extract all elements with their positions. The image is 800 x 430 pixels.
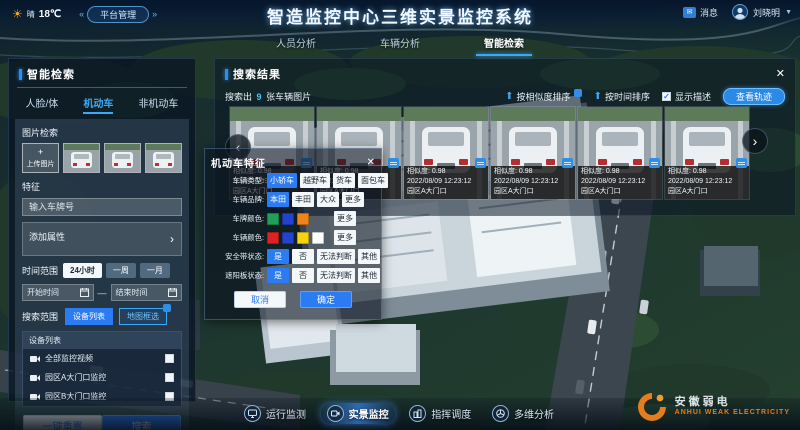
brand-more-button[interactable]: 更多 [342,192,364,207]
card-location: 园区A大门口 [581,188,659,197]
time-separator: — [98,288,107,298]
vendor-logo-icon [635,390,669,424]
sort-by-similarity-button[interactable]: ⬆ 按相似度排序 [505,90,581,103]
tab-motor-vehicle[interactable]: 机动车 [83,95,113,113]
search-panel-title: 智能检索 [27,66,75,82]
vehicle-color-more-button[interactable]: 更多 [334,230,356,245]
card-location: 园区A大门口 [494,188,572,197]
search-scope-label: 搜索范围 [22,310,58,323]
vehicle-color-label: 车辆颜色: [215,232,264,242]
sunvisor-label: 遮阳板状态: [215,270,264,280]
scope-device-list-button[interactable]: 设备列表 [65,308,113,325]
results-count: 9 [257,92,262,102]
start-time-field[interactable]: 开始时间 [22,284,94,301]
result-card[interactable]: 相似度: 0.982022/08/09 12:23:12园区A大门口 [404,107,488,199]
device-list: 设备列表 全部监控视频 园区A大门口监控 园区B大门口监控 [22,331,182,407]
card-time: 2022/08/09 12:23:12 [581,178,659,187]
query-image-thumbnail[interactable] [145,143,182,173]
result-card[interactable]: 相似度: 0.982022/08/09 12:23:12园区A大门口 [491,107,575,199]
card-time: 2022/08/09 12:23:12 [407,178,485,187]
sunvisor-option[interactable]: 其他 [358,268,380,283]
plate-color-more-button[interactable]: 更多 [334,211,356,226]
query-image-thumbnail[interactable] [104,143,141,173]
device-list-title: 设备列表 [23,332,181,349]
results-summary: 搜索出 9 张车辆图片 [225,90,311,103]
main-nav-tabs: 人员分析 车辆分析 智能检索 [0,30,800,54]
seatbelt-option[interactable]: 无法判断 [317,249,355,264]
bottom-nav-command-dispatch[interactable]: 指挥调度 [403,403,477,424]
sunvisor-option[interactable]: 是 [267,268,289,283]
vehicle-type-option[interactable]: 货车 [333,173,355,188]
left-angle-icon: « [79,9,84,19]
sort-by-time-button[interactable]: ⬆ 按时间排序 [594,90,650,103]
video-camera-icon [30,374,40,382]
motor-vehicle-feature-popup: 机动车特征 ✕ 车辆类型: 小轿车 越野车 货车 面包车 车辆品牌: 本田 丰田… [204,148,382,320]
card-description: 相似度: 0.982022/08/09 12:23:12园区A大门口 [491,166,575,199]
user-menu[interactable]: 刘晓明 ▼ [732,4,792,20]
popup-title: 机动车特征 [211,155,266,170]
vendor-watermark: 安徽弱电 ANHUI WEAK ELECTRICITY [635,390,790,424]
feature-label: 特征 [22,180,182,193]
vehicle-type-option[interactable]: 越野车 [300,173,330,188]
description-badge-icon [649,158,660,168]
vehicle-type-label: 车辆类型: [215,175,264,185]
query-image-thumbnail[interactable] [63,143,100,173]
tab-smart-search[interactable]: 智能检索 [478,32,530,53]
result-card[interactable]: 相似度: 0.982022/08/09 12:23:12园区A大门口 [578,107,662,199]
image-search-label: 图片检索 [22,126,182,139]
plate-number-input[interactable] [22,198,182,216]
video-camera-icon [30,355,40,363]
calendar-icon [80,288,89,297]
brand-option[interactable]: 丰田 [292,192,314,207]
card-location: 园区A大门口 [668,188,746,197]
cancel-button[interactable]: 取消 [234,291,286,308]
add-attribute-button[interactable]: 添加属性 › [22,222,182,256]
plate-color-swatch-blue[interactable] [282,213,294,225]
brand-option[interactable]: 大众 [317,192,339,207]
checkbox-checked-icon[interactable]: ✓ [662,92,671,101]
brand-option[interactable]: 本田 [267,192,289,207]
tab-non-motor-vehicle[interactable]: 非机动车 [138,95,178,113]
bottom-nav-operation-monitor[interactable]: 运行监测 [238,403,312,424]
card-description: 相似度: 0.982022/08/09 12:23:12园区A大门口 [578,166,662,199]
tab-vehicle-analysis[interactable]: 车辆分析 [374,32,426,53]
tab-person-analysis[interactable]: 人员分析 [270,32,322,53]
confirm-button[interactable]: 确定 [300,291,352,308]
arrow-up-icon: ⬆ [594,92,602,102]
card-description: 相似度: 0.982022/08/09 12:23:12园区A大门口 [665,166,749,199]
vendor-name-en: ANHUI WEAK ELECTRICITY [675,409,790,417]
bottom-nav-multi-analysis[interactable]: 多维分析 [486,403,560,424]
card-similarity: 相似度: 0.98 [407,168,485,177]
plate-color-swatch-orange[interactable] [297,213,309,225]
result-card[interactable]: 相似度: 0.982022/08/09 12:23:12园区A大门口 [665,107,749,199]
envelope-icon: ✉ [683,7,696,18]
vehicle-color-swatch-blue[interactable] [282,232,294,244]
calendar-icon [168,288,177,297]
device-item-gate-a[interactable]: 园区A大门口监控 [23,368,181,387]
seatbelt-label: 安全带状态: [215,251,264,261]
camera-icon [327,405,344,422]
card-time: 2022/08/09 12:23:12 [494,178,572,187]
time-range-label: 时间范围 [22,264,58,277]
chevron-right-icon: › [170,232,174,246]
plate-color-label: 车牌颜色: [215,213,264,223]
top-bar: ☀ 晴 18℃ « 平台管理 » 智造监控中心三维实景监控系统 ✉ 消息 刘晓明… [0,0,800,28]
description-badge-icon [736,158,747,168]
card-location: 园区A大门口 [407,188,485,197]
upload-image-button[interactable]: + 上传图片 [22,143,59,173]
vehicle-color-swatch-yellow[interactable] [297,232,309,244]
device-item-all-video[interactable]: 全部监控视频 [23,349,181,368]
view-track-button[interactable]: 查看轨迹 [723,88,785,105]
card-similarity: 相似度: 0.98 [494,168,572,177]
user-name: 刘晓明 [753,6,780,19]
sunvisor-option[interactable]: 否 [292,268,314,283]
end-time-field[interactable]: 结束时间 [111,284,183,301]
card-similarity: 相似度: 0.98 [581,168,659,177]
analysis-pie-icon [492,405,509,422]
vendor-name-cn: 安徽弱电 [675,396,790,409]
sort-badge-icon [574,89,582,97]
messages-button[interactable]: ✉ 消息 [683,6,718,19]
show-description-checkbox[interactable]: ✓ 显示描述 [662,90,711,103]
page-title: 智造监控中心三维实景监控系统 [267,3,533,28]
right-angle-icon: » [152,9,157,19]
vehicle-color-swatch-red[interactable] [267,232,279,244]
title-accent-bar [225,69,228,80]
card-similarity: 相似度: 0.98 [668,168,746,177]
device-checkbox[interactable] [165,373,174,382]
time-option-24h[interactable]: 24小时 [63,263,102,278]
seatbelt-option[interactable]: 否 [292,249,314,264]
title-accent-bar [19,69,22,80]
command-building-icon [409,405,426,422]
tab-face-body[interactable]: 人脸/体 [26,95,59,113]
cards-next-button[interactable]: › [742,128,768,154]
time-option-month[interactable]: 一月 [140,263,170,278]
platform-manage-button[interactable]: 平台管理 [87,6,149,23]
smart-search-panel: 智能检索 人脸/体 机动车 非机动车 图片检索 + 上传图片 [8,58,196,402]
weather-widget: ☀ 晴 18℃ [12,8,61,20]
sun-icon: ☀ [12,8,23,20]
arrow-up-icon: ⬆ [505,92,513,102]
map-select-badge-icon [163,304,171,312]
seatbelt-option[interactable]: 是 [267,249,289,264]
monitor-icon [244,405,261,422]
seatbelt-option[interactable]: 其他 [358,249,380,264]
close-icon[interactable]: ✕ [367,158,375,168]
card-time: 2022/08/09 12:23:12 [668,178,746,187]
description-badge-icon [562,158,573,168]
card-description: 相似度: 0.982022/08/09 12:23:12园区A大门口 [404,166,488,199]
description-badge-icon [475,158,486,168]
chevron-down-icon: ▼ [785,9,792,16]
app-window: ☀ 晴 18℃ « 平台管理 » 智造监控中心三维实景监控系统 ✉ 消息 刘晓明… [0,0,800,430]
time-option-week[interactable]: 一周 [106,263,136,278]
plate-color-swatch-green[interactable] [267,213,279,225]
bottom-nav-live-monitor[interactable]: 实景监控 [321,403,395,424]
plus-icon: + [38,148,43,157]
description-badge-icon [388,158,399,168]
vehicle-color-swatch-white[interactable] [312,232,324,244]
scope-map-select-button[interactable]: 地图框选 [119,308,167,325]
vehicle-type-option[interactable]: 面包车 [358,173,388,188]
close-icon[interactable]: ✕ [776,69,785,80]
sunvisor-option[interactable]: 无法判断 [317,268,355,283]
temperature: 18℃ [39,9,61,20]
vehicle-type-option[interactable]: 小轿车 [267,173,297,188]
vehicle-brand-label: 车辆品牌: [215,194,264,204]
avatar [732,4,748,20]
weather-condition: 晴 [27,9,35,20]
results-title: 搜索结果 [233,66,281,82]
device-checkbox[interactable] [165,354,174,363]
